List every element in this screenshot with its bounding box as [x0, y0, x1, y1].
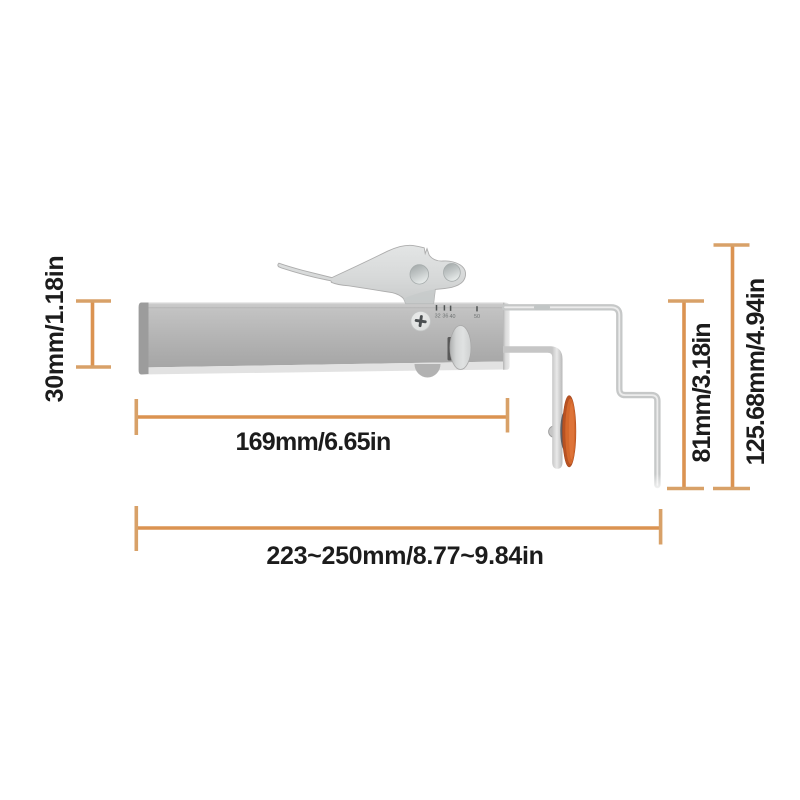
svg-text:30mm/1.18in: 30mm/1.18in: [41, 256, 69, 403]
svg-text:40: 40: [450, 314, 456, 320]
svg-text:125.68mm/4.94in: 125.68mm/4.94in: [742, 279, 770, 466]
svg-text:169mm/6.65in: 169mm/6.65in: [236, 428, 391, 456]
svg-text:32: 32: [435, 314, 441, 320]
svg-text:81mm/3.18in: 81mm/3.18in: [688, 323, 716, 462]
svg-text:223~250mm/8.77~9.84in: 223~250mm/8.77~9.84in: [266, 542, 543, 570]
svg-text:50: 50: [474, 314, 480, 320]
svg-text:36: 36: [442, 314, 448, 320]
